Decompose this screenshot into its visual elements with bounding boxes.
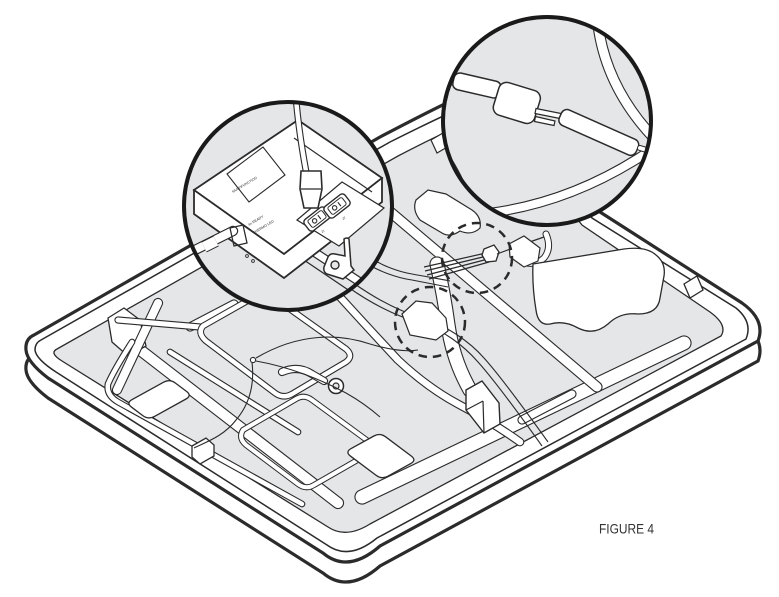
svg-text:FIGURE 4: FIGURE 4 <box>599 522 654 537</box>
